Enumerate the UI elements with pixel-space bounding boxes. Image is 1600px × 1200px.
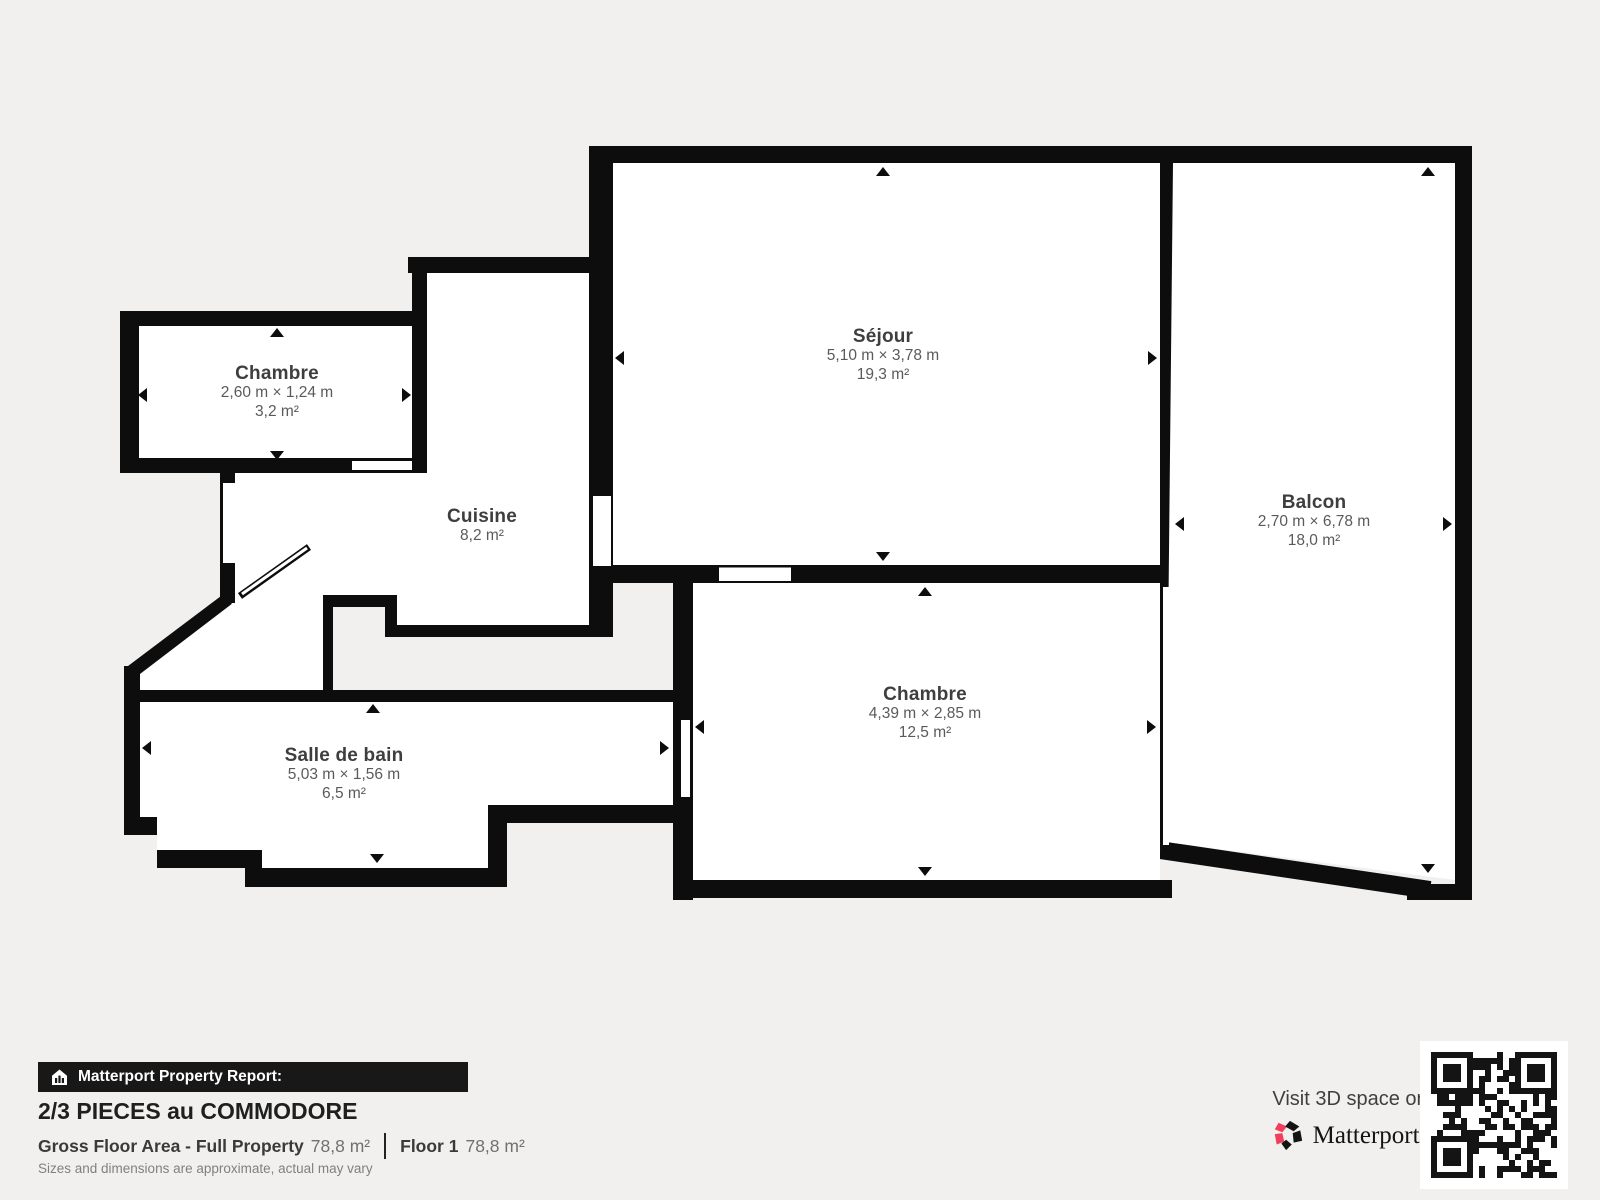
gross-floor-area-value: 78,8 m² [311, 1136, 370, 1157]
disclaimer-text: Sizes and dimensions are approximate, ac… [38, 1161, 373, 1176]
banner-title: Matterport Property Report: [78, 1068, 282, 1086]
house-icon [51, 1069, 68, 1086]
room-salle-de-bain [140, 702, 673, 868]
report-banner: Matterport Property Report: [38, 1062, 468, 1092]
room-area: 8,2 m² [447, 527, 517, 546]
divider [384, 1133, 386, 1159]
room-name: Chambre [221, 363, 333, 384]
property-title: 2/3 PIECES au COMMODORE [38, 1098, 358, 1125]
room-label-sejour: Séjour 5,10 m × 3,78 m 19,3 m² [827, 326, 939, 384]
matterport-wordmark: Matterport™ [1313, 1122, 1430, 1150]
room-label-chambre-2: Chambre 4,39 m × 2,85 m 12,5 m² [869, 684, 981, 742]
qr-code [1431, 1052, 1557, 1178]
gross-floor-area-label: Gross Floor Area - Full Property [38, 1136, 304, 1157]
floor-value: 78,8 m² [465, 1136, 524, 1157]
room-name: Chambre [869, 684, 981, 705]
room-area: 19,3 m² [827, 366, 939, 385]
room-label-balcon: Balcon 2,70 m × 6,78 m 18,0 m² [1258, 492, 1370, 550]
room-name: Séjour [827, 326, 939, 347]
room-dimensions: 2,70 m × 6,78 m [1258, 513, 1370, 532]
room-dimensions: 5,03 m × 1,56 m [285, 766, 404, 785]
qr-code-panel [1420, 1041, 1568, 1189]
area-summary: Gross Floor Area - Full Property 78,8 m²… [38, 1133, 525, 1159]
matterport-floor-plan-page: Chambre 2,60 m × 1,24 m 3,2 m² Cuisine 8… [0, 0, 1600, 1200]
matterport-logo-icon [1271, 1119, 1305, 1153]
room-area: 6,5 m² [285, 785, 404, 804]
room-label-chambre-1: Chambre 2,60 m × 1,24 m 3,2 m² [221, 363, 333, 421]
room-label-cuisine: Cuisine 8,2 m² [447, 506, 517, 546]
room-label-salle-de-bain: Salle de bain 5,03 m × 1,56 m 6,5 m² [285, 745, 404, 803]
room-name: Balcon [1258, 492, 1370, 513]
room-dimensions: 5,10 m × 3,78 m [827, 347, 939, 366]
room-name: Salle de bain [285, 745, 404, 766]
floor-label: Floor 1 [400, 1136, 458, 1157]
room-dimensions: 2,60 m × 1,24 m [221, 384, 333, 403]
room-dimensions: 4,39 m × 2,85 m [869, 705, 981, 724]
room-area: 12,5 m² [869, 724, 981, 743]
room-area: 18,0 m² [1258, 532, 1370, 551]
room-area: 3,2 m² [221, 403, 333, 422]
room-name: Cuisine [447, 506, 517, 527]
